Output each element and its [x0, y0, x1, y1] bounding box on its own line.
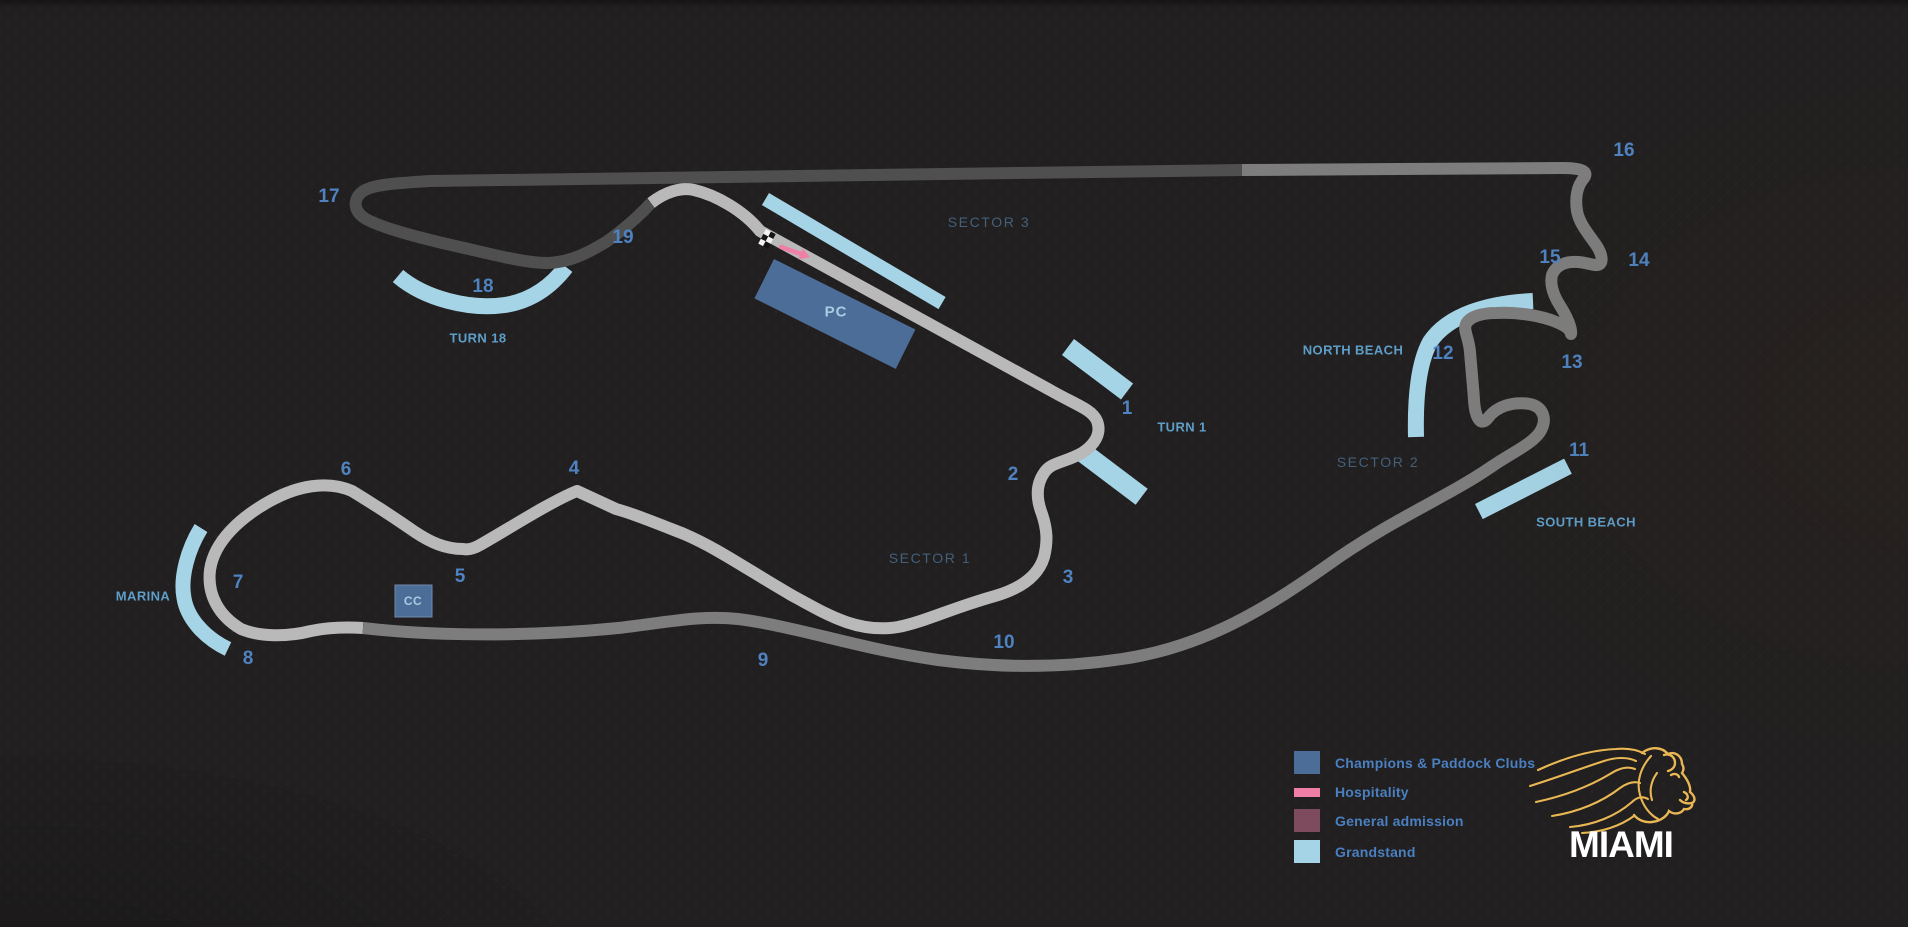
turn-label-4: 4: [569, 458, 580, 480]
turn-label-13: 13: [1561, 352, 1582, 374]
map-label-north-beach: NORTH BEACH: [1303, 343, 1403, 358]
miami-wordmark: MIAMI: [1551, 824, 1691, 866]
map-label-marina: MARINA: [116, 589, 170, 604]
turn-label-17: 17: [318, 186, 339, 208]
turn-label-7: 7: [233, 572, 244, 594]
turn-label-19: 19: [612, 227, 633, 249]
legend-item-champions-paddock-clubs: Champions & Paddock Clubs: [1294, 751, 1535, 774]
legend-swatch-grandstand: [1294, 840, 1320, 863]
legend-label: Hospitality: [1335, 783, 1409, 801]
turn-label-14: 14: [1628, 250, 1649, 272]
legend-item-general-admission: General admission: [1294, 809, 1535, 832]
turn-label-10: 10: [993, 632, 1014, 654]
turn-label-1: 1: [1122, 398, 1133, 420]
turn-label-5: 5: [455, 566, 466, 588]
legend-label: Grandstand: [1335, 843, 1416, 861]
map-label-turn-1: TURN 1: [1157, 420, 1206, 435]
turn-label-9: 9: [758, 650, 769, 672]
map-label-south-beach: SOUTH BEACH: [1536, 515, 1636, 530]
legend-item-grandstand: Grandstand: [1294, 840, 1535, 863]
map-label-turn-18: TURN 18: [450, 331, 507, 346]
turn-label-15: 15: [1539, 247, 1560, 269]
map-label-cc: CC: [404, 594, 422, 608]
map-label-pc: PC: [825, 304, 848, 321]
map-label-sector-2: SECTOR 2: [1337, 454, 1420, 470]
legend-swatch-hospitality: [1294, 788, 1320, 797]
turn-label-2: 2: [1008, 464, 1019, 486]
map-label-sector-3: SECTOR 3: [948, 214, 1031, 230]
legend: Champions & Paddock ClubsHospitalityGene…: [1294, 751, 1535, 871]
legend-item-hospitality: Hospitality: [1294, 783, 1535, 801]
turn-label-18: 18: [472, 276, 493, 298]
turn-label-12: 12: [1432, 343, 1453, 365]
map-label-sector-1: SECTOR 1: [889, 550, 972, 566]
turn-label-11: 11: [1569, 440, 1589, 462]
legend-swatch-general-admission: [1294, 809, 1320, 832]
labels-layer: 12345678910111213141516171819TURN 1TURN …: [0, 0, 1908, 927]
turn-label-16: 16: [1613, 140, 1634, 162]
legend-swatch-champions-paddock-clubs: [1294, 751, 1320, 774]
miami-circuit-map: 12345678910111213141516171819TURN 1TURN …: [0, 0, 1908, 927]
legend-label: Champions & Paddock Clubs: [1335, 754, 1535, 772]
turn-label-8: 8: [243, 648, 254, 670]
turn-label-3: 3: [1063, 567, 1074, 589]
turn-label-6: 6: [341, 459, 352, 481]
legend-label: General admission: [1335, 812, 1464, 830]
